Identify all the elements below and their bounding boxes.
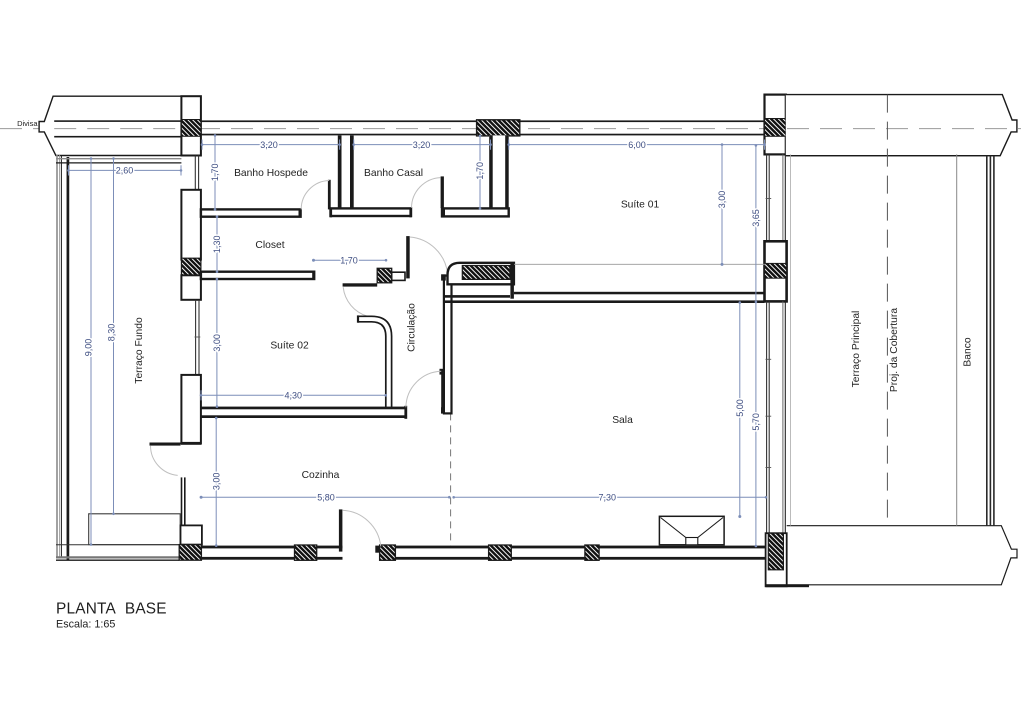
svg-text:1,70: 1,70: [210, 164, 220, 182]
svg-text:Banho Hospede: Banho Hospede: [234, 168, 308, 179]
svg-text:Proj. da Cobertura: Proj. da Cobertura: [889, 308, 900, 392]
svg-text:Terraço Fundo: Terraço Fundo: [134, 317, 145, 384]
svg-text:2,60: 2,60: [116, 166, 134, 176]
svg-text:8,30: 8,30: [106, 324, 116, 342]
svg-text:3,00: 3,00: [211, 473, 221, 491]
svg-text:7,30: 7,30: [599, 493, 617, 503]
svg-text:PLANTA BASE: PLANTA BASE: [56, 601, 167, 618]
svg-text:3,00: 3,00: [212, 334, 222, 352]
svg-text:Sala: Sala: [612, 415, 633, 426]
svg-text:3,20: 3,20: [260, 140, 278, 150]
svg-text:5,70: 5,70: [751, 413, 761, 431]
svg-text:5,00: 5,00: [735, 399, 745, 417]
svg-text:3,65: 3,65: [751, 209, 761, 227]
svg-text:1,30: 1,30: [212, 236, 222, 254]
svg-text:Circulação: Circulação: [407, 303, 418, 352]
svg-text:Terraço Principal: Terraço Principal: [851, 311, 862, 388]
svg-text:Divisa: Divisa: [17, 119, 38, 128]
svg-text:Cozinha: Cozinha: [302, 470, 340, 481]
svg-text:Closet: Closet: [255, 240, 284, 251]
svg-text:4,30: 4,30: [285, 391, 303, 401]
svg-text:9,00: 9,00: [84, 339, 94, 357]
svg-text:Escala: 1:65: Escala: 1:65: [56, 619, 115, 631]
svg-text:Banco: Banco: [963, 337, 974, 366]
svg-text:1,70: 1,70: [340, 255, 358, 265]
svg-text:5,80: 5,80: [317, 492, 335, 502]
svg-text:1,70: 1,70: [475, 162, 485, 180]
svg-text:6,00: 6,00: [628, 140, 646, 150]
svg-text:3,00: 3,00: [717, 191, 727, 209]
svg-text:Suíte 02: Suíte 02: [270, 341, 309, 352]
svg-text:Banho Casal: Banho Casal: [364, 168, 423, 179]
svg-text:3,20: 3,20: [413, 140, 431, 150]
svg-text:Suíte 01: Suíte 01: [621, 200, 660, 211]
